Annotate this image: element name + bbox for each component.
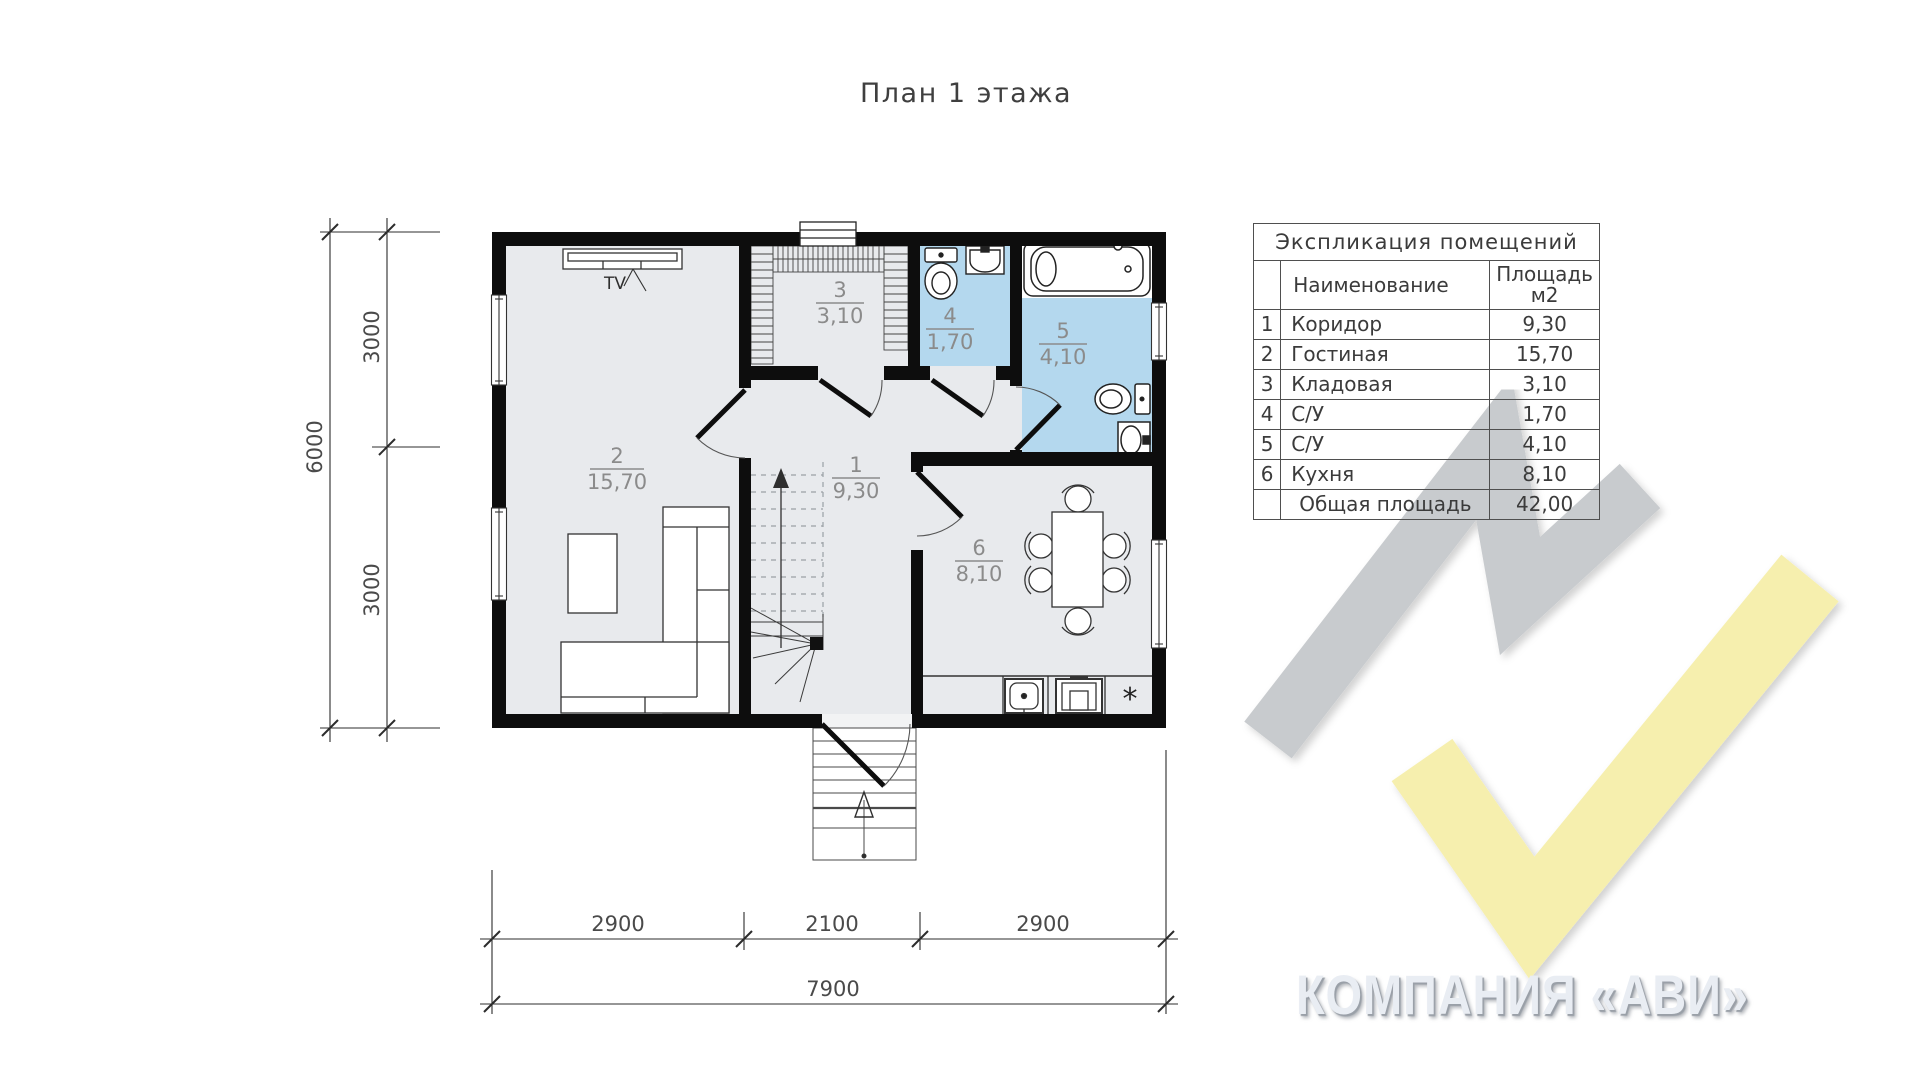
svg-text:1: 1 bbox=[849, 453, 862, 477]
svg-text:15,70: 15,70 bbox=[587, 470, 647, 494]
svg-text:1,70: 1,70 bbox=[927, 330, 974, 354]
table-row: 1 Коридор 9,30 bbox=[1254, 310, 1600, 340]
table-row: Общая площадь 42,00 bbox=[1254, 490, 1600, 520]
window bbox=[1152, 303, 1167, 360]
svg-text:4,10: 4,10 bbox=[1040, 345, 1087, 369]
svg-text:5: 5 bbox=[1056, 319, 1069, 343]
floor-plan-page: КОМПАНИЯ «АВИ» План 1 этажа bbox=[0, 0, 1920, 1080]
window bbox=[1152, 540, 1167, 648]
svg-text:8,10: 8,10 bbox=[956, 562, 1003, 586]
corridor-floor-top bbox=[751, 380, 1010, 452]
dim-left-seg-1: 3000 bbox=[360, 310, 384, 363]
stove bbox=[1056, 677, 1102, 713]
svg-text:6: 6 bbox=[972, 536, 985, 560]
toilet bbox=[1095, 384, 1150, 414]
tv-label: TV bbox=[603, 274, 626, 294]
dim-bottom-seg-3: 2900 bbox=[1016, 912, 1069, 936]
svg-text:3,10: 3,10 bbox=[817, 304, 864, 328]
explication-table: Экспликация помещений Наименование Площа… bbox=[1253, 223, 1600, 520]
dim-left-seg-2: 3000 bbox=[360, 563, 384, 616]
chimney-vent bbox=[800, 222, 856, 246]
table-row: 4 С/У 1,70 bbox=[1254, 400, 1600, 430]
stair-landing-post bbox=[810, 637, 823, 650]
svg-text:3: 3 bbox=[833, 278, 846, 302]
fridge-symbol: * bbox=[1123, 682, 1138, 717]
watermark-company-name: КОМПАНИЯ «АВИ» bbox=[1296, 962, 1749, 1027]
dim-bottom-seg-1: 2900 bbox=[591, 912, 644, 936]
window bbox=[492, 295, 507, 385]
svg-text:9,30: 9,30 bbox=[833, 479, 880, 503]
table-header-row: Наименование Площадь м2 bbox=[1254, 261, 1600, 310]
floor-plan-drawing: * bbox=[0, 0, 1920, 1080]
bathtub bbox=[1024, 242, 1150, 296]
svg-text:2: 2 bbox=[610, 444, 623, 468]
coffee-table bbox=[568, 534, 617, 613]
kitchen-sink bbox=[1005, 679, 1043, 718]
table-title-row: Экспликация помещений bbox=[1254, 224, 1600, 261]
window bbox=[492, 508, 507, 600]
toilet bbox=[925, 248, 957, 299]
svg-text:4: 4 bbox=[943, 304, 956, 328]
dim-bottom-total: 7900 bbox=[806, 977, 859, 1001]
table-row: 3 Кладовая 3,10 bbox=[1254, 370, 1600, 400]
table-row: 2 Гостиная 15,70 bbox=[1254, 340, 1600, 370]
entrance-porch bbox=[813, 728, 916, 860]
column-header-area: Площадь м2 bbox=[1490, 261, 1600, 310]
corridor-floor-main bbox=[751, 452, 911, 714]
dim-left-total: 6000 bbox=[303, 420, 327, 473]
table-row: 5 С/У 4,10 bbox=[1254, 430, 1600, 460]
sink bbox=[966, 246, 1004, 274]
column-header-name: Наименование bbox=[1281, 261, 1490, 310]
dim-bottom-seg-2: 2100 bbox=[805, 912, 858, 936]
table-row: 6 Кухня 8,10 bbox=[1254, 460, 1600, 490]
table-title: Экспликация помещений bbox=[1254, 224, 1600, 261]
